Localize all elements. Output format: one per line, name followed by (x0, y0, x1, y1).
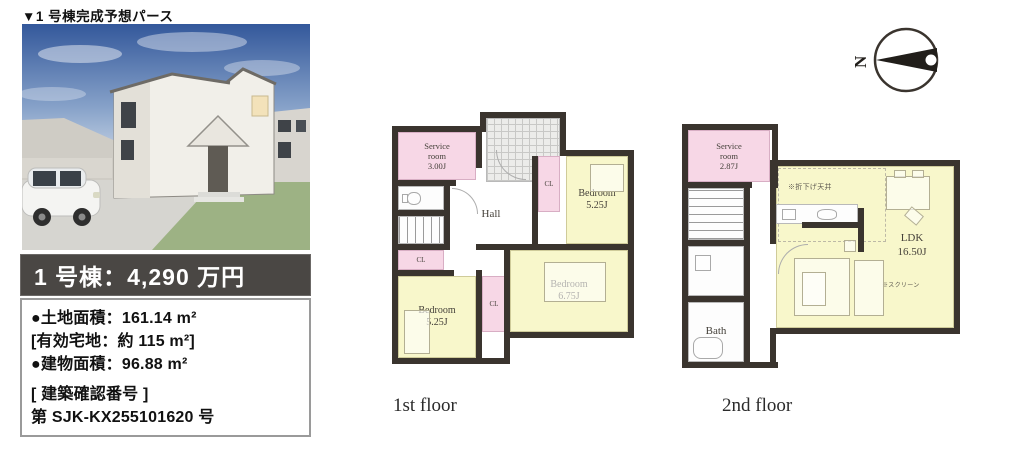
bed-icon (404, 310, 430, 354)
bed-icon (590, 164, 624, 192)
room-service-2f: Service room 2.87J (688, 130, 770, 182)
closet-center: CL (482, 276, 506, 332)
toilet-room (398, 186, 444, 210)
real-estate-flyer: ▼1 号棟完成予想パース (0, 0, 1012, 450)
render-caption: ▼1 号棟完成予想パース (22, 5, 173, 25)
floor1-caption: 1st floor (393, 395, 457, 417)
north-compass-icon: N (850, 22, 950, 98)
chair-icon (894, 170, 906, 178)
washroom (688, 246, 744, 296)
room-bath: Bath (688, 302, 744, 362)
ldk-label: LDK 16.50J (876, 230, 948, 262)
kitchen-counter (776, 204, 858, 224)
room-service-1f: Service room 3.00J (398, 132, 476, 180)
chair-icon (912, 170, 924, 178)
front-door (208, 146, 228, 194)
floorplan-2nd: Service room 2.87J Bath ※折下げ天井 LDK 16.50… (682, 112, 960, 368)
stairs-2f (688, 188, 744, 240)
closet-left: CL (398, 250, 444, 270)
floor2-caption: 2nd floor (722, 395, 792, 417)
building-area: ●建物面積：96.88 m² (31, 353, 300, 376)
bed-icon (544, 262, 606, 302)
confirmation-number: 第 SJK-KX255101620 号 (31, 406, 300, 429)
stairs-1f (398, 216, 444, 244)
price-banner: 1 号棟：4,290 万円 (20, 254, 311, 296)
lit-window (252, 96, 268, 116)
property-details-box: ●土地面積：161.14 m² [有効宅地：約 115 m²] ●建物面積：96… (20, 298, 311, 437)
dining-table-icon (886, 176, 930, 210)
table-icon (802, 272, 826, 306)
svg-text:N: N (851, 55, 870, 68)
land-area: ●土地面積：161.14 m² (31, 307, 300, 330)
closet-mid: CL (538, 156, 560, 212)
effective-land-area: [有効宅地：約 115 m²] (31, 330, 300, 353)
house-render-image (22, 24, 310, 250)
floorplan-1st: Service room 3.00J CL Bedroom 5.25J Hall… (392, 112, 634, 364)
sofa-icon (854, 260, 884, 316)
cabinet-icon (844, 240, 856, 252)
confirmation-label: [ 建築確認番号 ] (31, 383, 300, 406)
screen-note: ※スクリーン (882, 280, 920, 289)
price-text: 1 号棟：4,290 万円 (34, 258, 245, 292)
ceiling-note: ※折下げ天井 (788, 182, 832, 192)
